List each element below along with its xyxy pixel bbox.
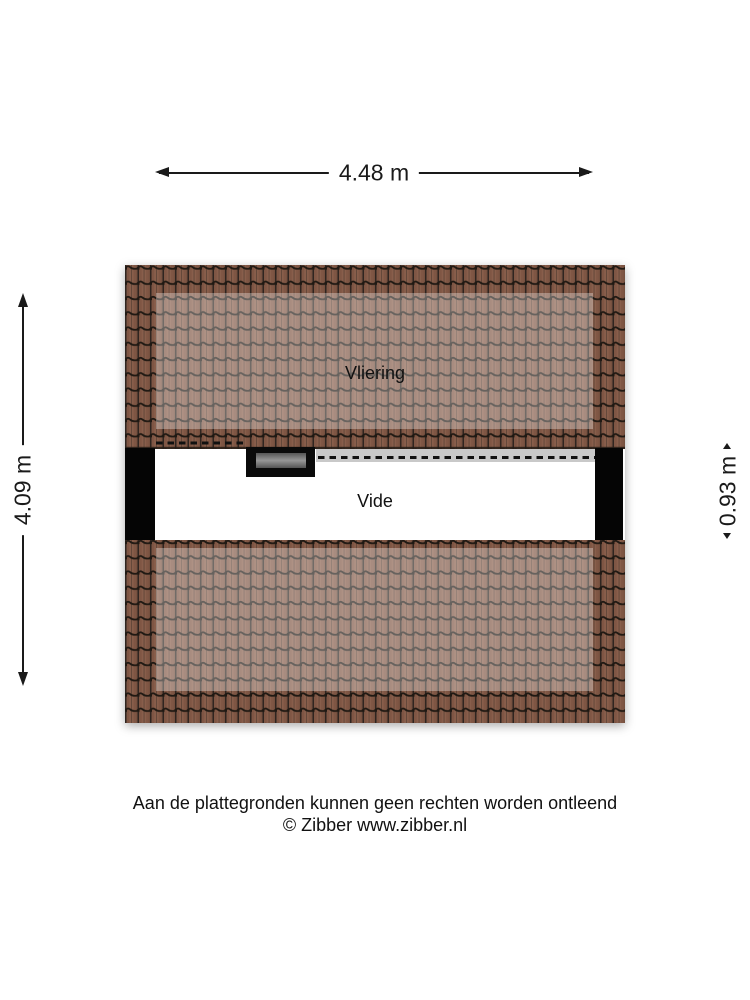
dimension-vide-height: 0.93 m — [714, 443, 742, 539]
room-label-vide: Vide — [125, 491, 625, 512]
arrow-up-small-icon — [723, 443, 731, 449]
copyright-text: © Zibber www.zibber.nl — [0, 814, 750, 836]
disclaimer-text: Aan de plattegronden kunnen geen rechten… — [0, 792, 750, 814]
ledge-strip — [316, 449, 595, 462]
footer: Aan de plattegronden kunnen geen rechten… — [0, 792, 750, 836]
floorplan-page: 4.48 m 4.09 m 0.93 m — [0, 0, 750, 1000]
roof-top-band — [125, 265, 625, 449]
roof-bottom-band — [125, 540, 625, 723]
dimension-height: 4.09 m — [9, 293, 37, 686]
dimension-vide-height-label: 0.93 m — [715, 452, 740, 530]
dimension-width-label: 4.48 m — [329, 160, 419, 185]
dimension-height-label: 4.09 m — [10, 444, 35, 534]
arrow-up-icon — [18, 293, 28, 307]
room-label-vliering: Vliering — [125, 363, 625, 384]
arrow-left-icon — [155, 167, 169, 177]
dimension-width: 4.48 m — [155, 159, 593, 187]
arrow-right-icon — [579, 167, 593, 177]
roof-window — [246, 447, 315, 477]
arrow-down-icon — [18, 672, 28, 686]
arrow-down-small-icon — [723, 533, 731, 539]
